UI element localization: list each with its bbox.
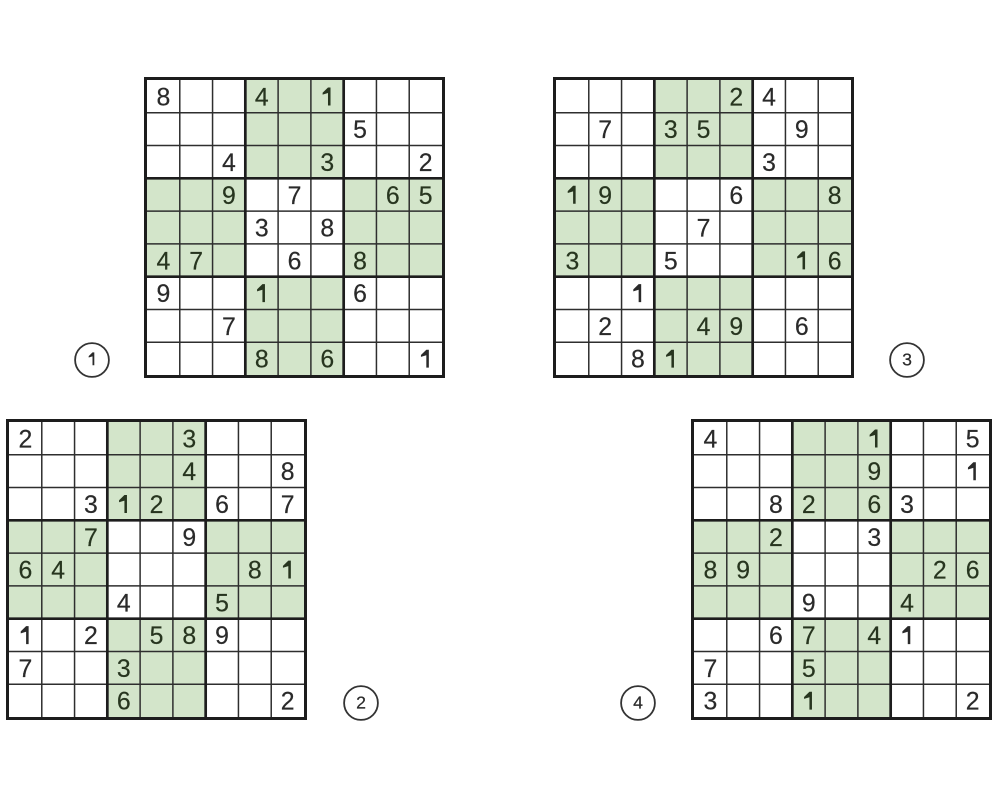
svg-text:9: 9 xyxy=(215,623,229,650)
svg-text:6: 6 xyxy=(320,347,334,374)
svg-text:8: 8 xyxy=(828,183,842,210)
svg-text:5: 5 xyxy=(664,248,678,275)
svg-text:7: 7 xyxy=(281,492,295,519)
svg-text:2: 2 xyxy=(356,692,366,712)
svg-text:4: 4 xyxy=(156,248,170,275)
svg-text:8: 8 xyxy=(631,347,645,374)
svg-text:8: 8 xyxy=(704,558,718,585)
svg-text:2: 2 xyxy=(598,314,612,341)
svg-text:2: 2 xyxy=(84,623,98,650)
svg-text:2: 2 xyxy=(769,525,783,552)
svg-text:5: 5 xyxy=(215,591,229,618)
svg-text:4: 4 xyxy=(697,314,711,341)
svg-text:3: 3 xyxy=(902,349,912,369)
svg-text:4: 4 xyxy=(117,591,131,618)
svg-text:7: 7 xyxy=(189,248,203,275)
svg-text:2: 2 xyxy=(802,492,816,519)
svg-text:4: 4 xyxy=(255,84,269,111)
svg-text:3: 3 xyxy=(255,216,269,243)
svg-text:3: 3 xyxy=(183,427,197,454)
svg-text:9: 9 xyxy=(222,183,236,210)
svg-text:6: 6 xyxy=(729,183,743,210)
svg-text:7: 7 xyxy=(598,117,612,144)
svg-text:3: 3 xyxy=(117,656,131,683)
svg-text:8: 8 xyxy=(156,84,170,111)
svg-text:2: 2 xyxy=(729,84,743,111)
svg-text:8: 8 xyxy=(353,248,367,275)
svg-text:9: 9 xyxy=(795,117,809,144)
svg-text:6: 6 xyxy=(19,558,33,585)
svg-text:5: 5 xyxy=(419,183,433,210)
svg-text:3: 3 xyxy=(704,689,718,716)
svg-text:8: 8 xyxy=(281,459,295,486)
svg-text:7: 7 xyxy=(19,656,33,683)
svg-text:2: 2 xyxy=(281,689,295,716)
svg-text:3: 3 xyxy=(84,492,98,519)
svg-text:7: 7 xyxy=(697,216,711,243)
svg-text:6: 6 xyxy=(117,689,131,716)
svg-text:5: 5 xyxy=(353,117,367,144)
svg-text:3: 3 xyxy=(900,492,914,519)
svg-text:9: 9 xyxy=(729,314,743,341)
svg-text:6: 6 xyxy=(769,623,783,650)
svg-text:8: 8 xyxy=(320,216,334,243)
svg-text:9: 9 xyxy=(802,591,816,618)
svg-text:2: 2 xyxy=(19,427,33,454)
svg-text:8: 8 xyxy=(255,347,269,374)
svg-text:7: 7 xyxy=(288,183,302,210)
svg-text:7: 7 xyxy=(222,314,236,341)
svg-text:6: 6 xyxy=(215,492,229,519)
svg-text:4: 4 xyxy=(704,427,718,454)
svg-text:4: 4 xyxy=(51,558,65,585)
svg-text:5: 5 xyxy=(697,117,711,144)
svg-text:9: 9 xyxy=(183,525,197,552)
svg-text:3: 3 xyxy=(664,117,678,144)
svg-text:3: 3 xyxy=(320,150,334,177)
svg-text:3: 3 xyxy=(565,248,579,275)
svg-text:2: 2 xyxy=(966,689,980,716)
svg-text:8: 8 xyxy=(769,492,783,519)
svg-text:4: 4 xyxy=(762,84,776,111)
svg-text:7: 7 xyxy=(84,525,98,552)
svg-text:6: 6 xyxy=(868,492,882,519)
svg-text:2: 2 xyxy=(419,150,433,177)
svg-text:6: 6 xyxy=(386,183,400,210)
svg-text:4: 4 xyxy=(868,623,882,650)
svg-text:3: 3 xyxy=(762,150,776,177)
svg-text:8: 8 xyxy=(248,558,262,585)
svg-text:8: 8 xyxy=(183,623,197,650)
svg-text:9: 9 xyxy=(737,558,751,585)
svg-text:2: 2 xyxy=(150,492,164,519)
svg-text:2: 2 xyxy=(933,558,947,585)
svg-text:6: 6 xyxy=(795,314,809,341)
svg-text:4: 4 xyxy=(222,150,236,177)
svg-text:4: 4 xyxy=(900,591,914,618)
svg-text:4: 4 xyxy=(183,459,197,486)
svg-text:6: 6 xyxy=(353,281,367,308)
svg-text:9: 9 xyxy=(868,459,882,486)
svg-text:4: 4 xyxy=(633,692,643,712)
svg-text:9: 9 xyxy=(156,281,170,308)
svg-text:6: 6 xyxy=(966,558,980,585)
svg-text:6: 6 xyxy=(828,248,842,275)
svg-text:5: 5 xyxy=(966,427,980,454)
svg-text:9: 9 xyxy=(598,183,612,210)
svg-text:5: 5 xyxy=(802,656,816,683)
svg-text:7: 7 xyxy=(704,656,718,683)
svg-text:6: 6 xyxy=(288,248,302,275)
svg-text:5: 5 xyxy=(150,623,164,650)
svg-text:7: 7 xyxy=(802,623,816,650)
svg-text:3: 3 xyxy=(868,525,882,552)
